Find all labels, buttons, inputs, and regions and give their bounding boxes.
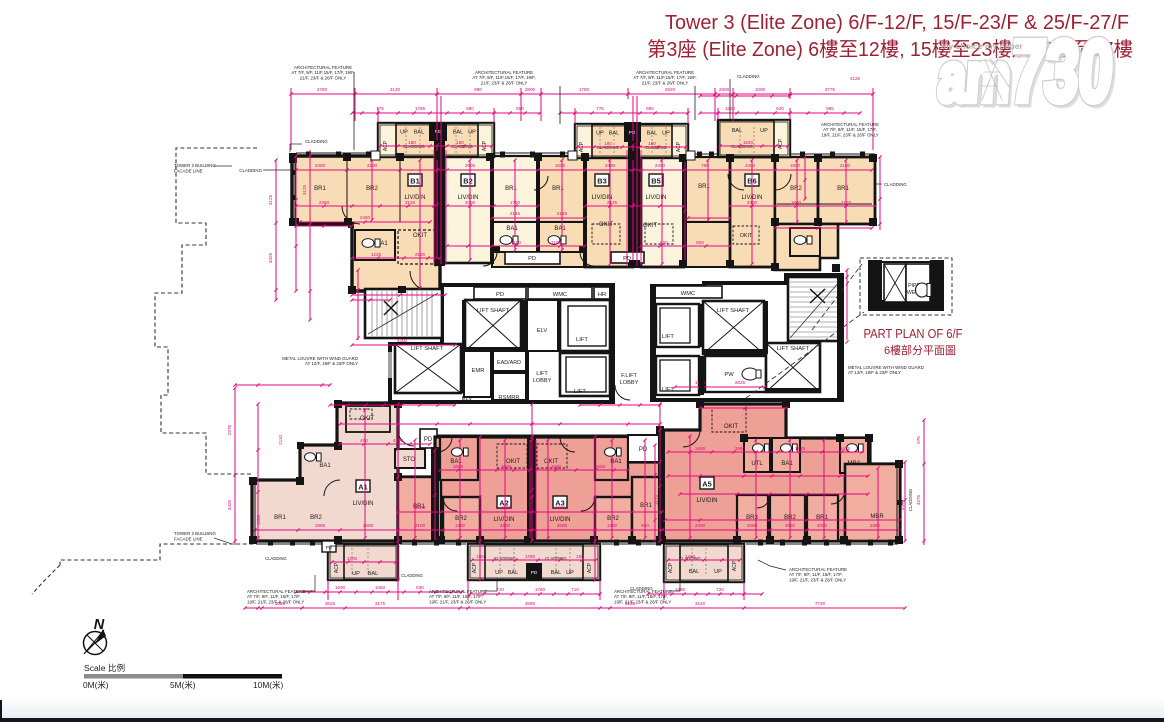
svg-text:CLADDING: CLADDING [305,139,328,144]
svg-text:6樓部分平面圖: 6樓部分平面圖 [884,343,956,357]
svg-text:1460: 1460 [375,585,386,590]
svg-text:4300: 4300 [397,338,408,343]
svg-text:F.LIFT: F.LIFT [621,373,637,379]
svg-text:3125: 3125 [302,184,307,195]
svg-text:2050: 2050 [785,523,796,528]
svg-text:1100: 1100 [551,240,561,245]
svg-text:LOBBY: LOBBY [533,378,552,384]
svg-text:LIFT: LIFT [576,337,588,343]
svg-text:MBR: MBR [870,514,884,520]
svg-text:BR1: BR1 [640,503,652,509]
svg-text:ACP: ACP [732,560,738,571]
svg-text:BR2: BR2 [310,515,322,521]
svg-text:2600: 2600 [557,523,568,528]
svg-text:3690: 3690 [525,601,536,606]
svg-text:980: 980 [474,87,482,92]
svg-text:FACADE LINE: FACADE LINE [174,537,203,542]
svg-text:2400: 2400 [315,163,326,168]
svg-text:BR1: BR1 [552,186,564,192]
svg-text:4126: 4126 [850,76,861,81]
svg-text:1173: 1173 [654,495,659,505]
svg-text:1600: 1600 [555,163,566,168]
svg-text:900: 900 [660,240,668,245]
svg-text:BR1: BR1 [698,184,710,190]
svg-text:UP: UP [468,130,476,136]
svg-text:PD: PD [629,130,636,135]
svg-text:CLADDING: CLADDING [630,586,653,591]
svg-text:1750: 1750 [510,200,521,205]
svg-text:3425: 3425 [227,499,232,510]
svg-text:940: 940 [641,523,649,528]
svg-text:1520: 1520 [743,140,754,145]
svg-text:1800: 1800 [790,163,801,168]
svg-text:BA1: BA1 [506,226,518,232]
svg-text:1785: 1785 [415,106,426,111]
svg-text:7730: 7730 [815,601,826,606]
svg-text:2600: 2600 [363,523,374,528]
svg-text:ELV: ELV [537,328,548,334]
svg-text:ELV: ELV [462,396,473,402]
svg-text:775: 775 [596,106,604,111]
svg-text:880: 880 [516,106,524,111]
svg-text:LIFT SHAFT: LIFT SHAFT [717,308,750,314]
svg-text:LIFT: LIFT [662,387,674,393]
svg-text:2100: 2100 [415,505,426,510]
svg-text:UP: UP [400,130,408,136]
svg-text:5M(米): 5M(米) [170,680,196,690]
svg-text:3625: 3625 [325,601,336,606]
svg-text:2400: 2400 [745,163,756,168]
svg-text:2110: 2110 [278,435,283,445]
svg-text:2460: 2460 [319,200,330,205]
svg-text:1475: 1475 [840,446,851,451]
svg-text:BAL: BAL [414,130,425,136]
svg-text:2400: 2400 [747,200,758,205]
svg-text:BAL: BAL [453,130,464,136]
svg-text:2100: 2100 [367,163,378,168]
svg-text:1600: 1600 [453,464,464,469]
svg-text:PART PLAN OF 6/F: PART PLAN OF 6/F [864,327,963,341]
svg-text:CLADDING: CLADDING [908,488,913,511]
svg-text:TOWER 2 BUILDING: TOWER 2 BUILDING [174,531,216,536]
svg-text:720: 720 [716,587,724,592]
svg-text:BR1: BR1 [505,186,517,192]
svg-text:LIFT: LIFT [536,371,548,377]
svg-text:1100: 1100 [511,240,521,245]
svg-text:1000: 1000 [755,87,766,92]
svg-text:RSMRR: RSMRR [498,395,519,401]
svg-text:ACP: ACP [668,562,674,573]
svg-text:BA1: BA1 [554,226,566,232]
svg-text:3120: 3120 [695,601,706,606]
svg-text:FACADE LINE: FACADE LINE [174,169,203,174]
svg-text:AT 12/F, 19/F & 23/F ONLY: AT 12/F, 19/F & 23/F ONLY [305,361,358,366]
svg-text:710: 710 [496,587,504,592]
svg-text:150: 150 [576,554,584,559]
svg-text:B1: B1 [410,177,419,186]
svg-text:BAL: BAL [508,570,519,576]
svg-text:ACP: ACP [587,562,593,573]
svg-text:1000: 1000 [501,464,512,469]
svg-text:730: 730 [1008,22,1116,119]
svg-text:LIFT SHAFT: LIFT SHAFT [411,346,444,352]
svg-text:BR2: BR2 [607,516,619,522]
svg-text:3460: 3460 [735,446,746,451]
svg-text:LIFT: LIFT [574,389,586,395]
svg-text:1080: 1080 [256,514,261,525]
svg-text:UTL: UTL [751,461,763,467]
svg-text:4475: 4475 [916,494,921,505]
svg-text:160: 160 [648,141,656,146]
svg-text:2400: 2400 [655,163,666,168]
svg-text:AT 12/F, 19/F & 23/F ONLY: AT 12/F, 19/F & 23/F ONLY [848,370,901,375]
svg-text:UP: UP [495,570,503,576]
svg-text:1300: 1300 [347,556,358,561]
svg-text:OKIT: OKIT [360,416,374,422]
svg-text:STO: STO [403,457,416,463]
svg-text:630: 630 [416,585,424,590]
svg-text:975: 975 [916,436,921,444]
svg-text:1225: 1225 [371,252,382,257]
svg-text:CLADDING: CLADDING [737,74,760,79]
svg-text:ACP: ACP [472,562,478,573]
svg-text:1780: 1780 [579,87,590,92]
svg-text:980: 980 [466,106,474,111]
svg-text:my choice my paper: my choice my paper [941,41,1023,51]
svg-text:985: 985 [826,106,834,111]
svg-text:1400: 1400 [607,523,618,528]
svg-text:WMC: WMC [681,291,696,297]
svg-text:LIV/DIN: LIV/DIN [645,195,666,201]
svg-text:PW: PW [724,372,734,378]
svg-text:CLADDING: CLADDING [401,573,423,578]
svg-text:3775: 3775 [825,87,836,92]
svg-text:2125: 2125 [607,200,618,205]
svg-text:19/F, 21/F, 23/F & 26/F ONLY: 19/F, 21/F, 23/F & 26/F ONLY [821,132,878,137]
svg-text:ACP: ACP [778,138,784,149]
svg-text:2800: 2800 [525,87,536,92]
svg-text:B2: B2 [463,177,472,186]
svg-text:OKIT: OKIT [599,222,613,228]
svg-text:180: 180 [604,141,612,146]
svg-text:2900: 2900 [719,87,730,92]
svg-text:180: 180 [408,140,416,145]
svg-text:OKIT: OKIT [740,233,753,239]
svg-text:3125: 3125 [268,194,273,205]
svg-text:PD: PD [531,570,538,575]
svg-text:2800: 2800 [555,505,566,510]
svg-text:LOBBY: LOBBY [620,380,639,386]
svg-text:1825: 1825 [795,446,806,451]
svg-text:LIFT SHAFT: LIFT SHAFT [777,346,810,352]
svg-text:ACP: ACP [334,562,340,573]
svg-text:1780: 1780 [525,554,536,559]
svg-text:2400: 2400 [695,523,706,528]
svg-text:LIV/DIN: LIV/DIN [696,498,717,504]
svg-text:1800: 1800 [791,200,802,205]
svg-text:EMR: EMR [472,368,485,374]
svg-text:TOWER 2 BUILDING: TOWER 2 BUILDING [174,163,216,168]
svg-text:HR: HR [598,292,606,298]
svg-text:750: 750 [701,163,709,168]
svg-text:LIFT: LIFT [662,334,674,340]
svg-text:BAL: BAL [689,569,700,575]
svg-text:BA1: BA1 [319,463,331,469]
svg-text:UP: UP [760,128,768,134]
svg-text:PD: PD [496,292,504,298]
svg-text:BAL: BAL [732,128,743,134]
svg-text:A5: A5 [702,480,711,489]
svg-text:BAL: BAL [368,571,379,577]
svg-text:3175: 3175 [375,601,386,606]
svg-text:2125: 2125 [841,200,852,205]
svg-text:LIV/DIN: LIV/DIN [352,501,373,507]
svg-text:A1: A1 [358,483,367,492]
svg-text:2975: 2975 [227,424,232,435]
svg-text:OKIT: OKIT [724,424,738,430]
svg-text:2100: 2100 [415,523,426,528]
svg-text:1400: 1400 [455,523,466,528]
svg-text:LIFT SHAFT: LIFT SHAFT [477,308,510,314]
svg-text:19/F, 21/F, 23/F & 26/F ONLY: 19/F, 21/F, 23/F & 26/F ONLY [614,599,671,604]
svg-text:UP: UP [352,571,360,577]
svg-text:Scale 比例: Scale 比例 [84,662,125,673]
svg-text:920: 920 [696,240,704,245]
svg-text:B3: B3 [597,177,606,186]
svg-text:BR1: BR1 [314,186,326,192]
svg-text:2100: 2100 [840,163,851,168]
svg-text:19/F, 21/F, 23/F & 26/F ONLY: 19/F, 21/F, 23/F & 26/F ONLY [247,599,304,604]
svg-text:3120: 3120 [390,87,401,92]
svg-text:2125: 2125 [557,211,568,216]
svg-text:1985: 1985 [315,523,326,528]
svg-text:2620: 2620 [665,87,676,92]
svg-text:10M(米): 10M(米) [253,680,283,690]
svg-text:BR1: BR1 [837,186,849,192]
svg-text:2000: 2000 [501,505,512,510]
svg-text:1000: 1000 [551,464,562,469]
svg-text:2625: 2625 [735,380,746,385]
svg-text:19/F, 21/F, 23/F & 26/F ONLY: 19/F, 21/F, 23/F & 26/F ONLY [429,599,486,604]
svg-text:160: 160 [456,140,464,145]
svg-text:1490: 1490 [685,554,696,559]
svg-text:2360: 2360 [870,523,881,528]
svg-text:3425: 3425 [268,252,273,263]
svg-text:CLADDING: CLADDING [884,182,907,187]
svg-text:775: 775 [376,106,384,111]
svg-text:EAD/ARD: EAD/ARD [497,360,521,366]
svg-text:1625: 1625 [595,464,606,469]
svg-text:WMC: WMC [553,292,568,298]
svg-text:N: N [94,617,105,633]
svg-text:21/F, 23/F & 26/F ONLY: 21/F, 23/F & 26/F ONLY [481,80,528,85]
svg-text:21/F, 23/F & 26/F ONLY: 21/F, 23/F & 26/F ONLY [300,75,347,80]
svg-text:2400: 2400 [605,163,616,168]
svg-text:19/F, 21/F, 23/F & 26/F ONLY: 19/F, 21/F, 23/F & 26/F ONLY [789,577,846,582]
svg-text:400: 400 [360,438,368,443]
svg-text:2600: 2600 [500,523,511,528]
svg-text:PD: PD [528,256,536,262]
svg-text:BR2: BR2 [790,186,802,192]
svg-text:21/F, 23/F & 26/F ONLY: 21/F, 23/F & 26/F ONLY [642,80,689,85]
svg-text:2125: 2125 [510,211,521,216]
svg-text:1500: 1500 [335,585,346,590]
svg-text:2050: 2050 [747,523,758,528]
svg-text:2780: 2780 [317,87,328,92]
svg-text:BA1: BA1 [781,461,793,467]
svg-text:985: 985 [646,106,654,111]
svg-text:BR1: BR1 [274,515,286,521]
svg-text:2600: 2600 [465,163,476,168]
svg-text:2125: 2125 [405,200,416,205]
svg-text:PD: PD [424,437,433,443]
svg-text:CLADDING: CLADDING [239,168,262,173]
svg-text:1780: 1780 [535,587,546,592]
svg-text:2100: 2100 [415,252,426,257]
svg-text:MBA: MBA [847,461,860,467]
svg-text:CLADDING: CLADDING [265,556,287,561]
svg-text:2050: 2050 [817,523,828,528]
svg-text:BR2: BR2 [455,516,467,522]
svg-text:710: 710 [571,587,579,592]
svg-text:UP: UP [714,569,722,575]
svg-text:PD: PD [639,447,648,453]
svg-text:0M(米): 0M(米) [83,680,109,690]
svg-text:2000: 2000 [465,200,476,205]
svg-text:2460: 2460 [360,215,371,220]
svg-text:B5: B5 [651,177,660,186]
svg-text:1400: 1400 [695,446,706,451]
svg-text:630: 630 [776,106,784,111]
